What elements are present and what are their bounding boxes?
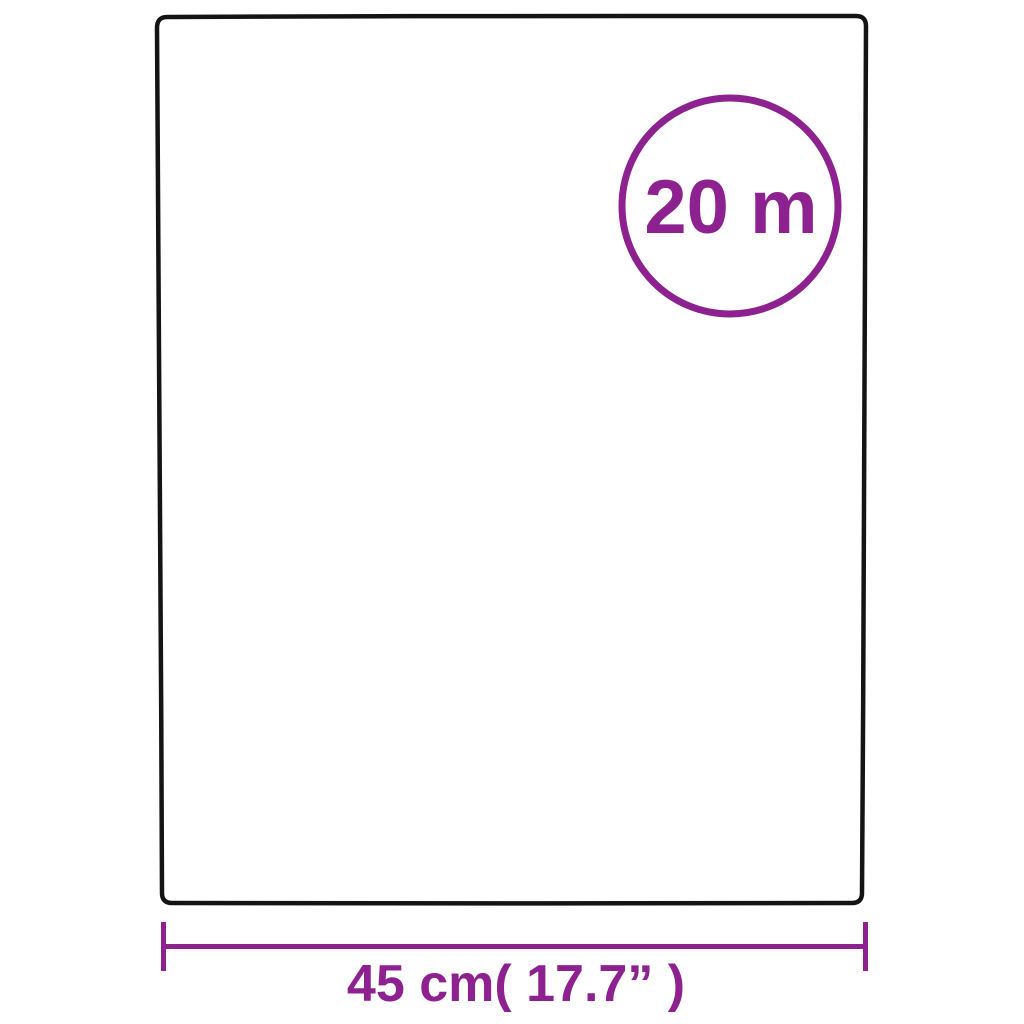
roll-length-label: 20 m [644, 165, 817, 250]
width-dimension: 45 cm( 17.7” ) [163, 922, 866, 1013]
width-dimension-label: 45 cm( 17.7” ) [347, 955, 685, 1013]
roll-length-badge: 20 m [622, 98, 838, 314]
product-dimension-diagram: 20 m 45 cm( 17.7” ) [0, 0, 1024, 1024]
diagram-canvas: 20 m 45 cm( 17.7” ) [0, 0, 1024, 1024]
